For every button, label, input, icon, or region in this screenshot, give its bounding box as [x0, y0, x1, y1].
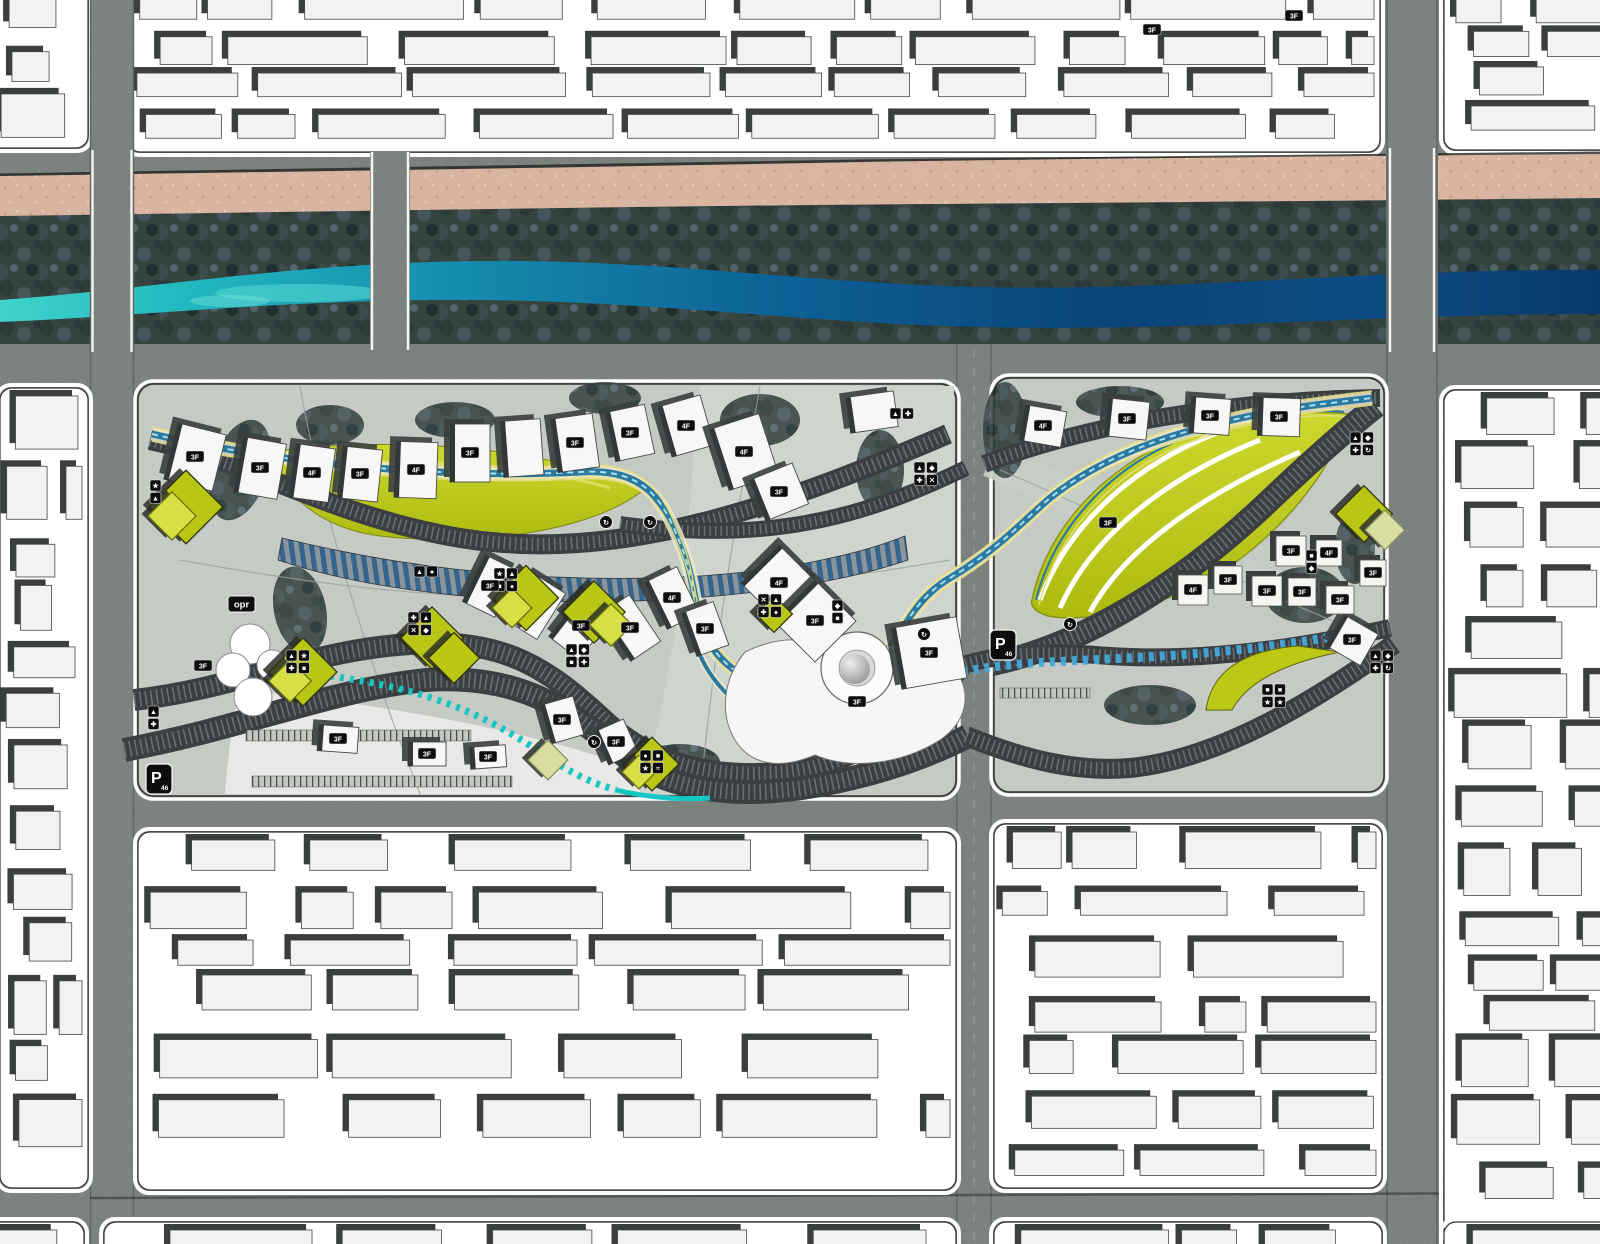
building [1015, 1150, 1124, 1175]
floor-label: 3F [701, 627, 710, 634]
floor-label: 3F [423, 752, 432, 759]
building [413, 73, 566, 97]
floor-label: 3F [256, 466, 265, 473]
parking-row [1000, 688, 1090, 698]
svg-text:◆: ◆ [580, 647, 587, 654]
svg-text:●: ● [510, 584, 514, 591]
svg-text:●: ● [774, 610, 778, 617]
building [633, 975, 745, 1010]
svg-text:●: ● [643, 753, 647, 760]
building [1069, 37, 1125, 65]
city-blocks-top [0, 0, 1600, 155]
building [1182, 1230, 1237, 1244]
building [785, 940, 950, 965]
building [1471, 622, 1562, 658]
floor-label: 3F [1104, 521, 1113, 528]
building [332, 1040, 511, 1078]
activity-badge-cluster: ↻ [1064, 618, 1077, 631]
building [628, 114, 739, 138]
building [1461, 1039, 1528, 1086]
building [837, 37, 902, 65]
svg-text:●: ● [430, 569, 434, 576]
svg-text:◆: ◆ [928, 465, 935, 472]
svg-text:■: ■ [569, 660, 573, 667]
parking-badge: P46 [990, 630, 1016, 660]
building [595, 940, 763, 965]
svg-text:▲: ▲ [416, 569, 423, 576]
svg-text:★: ★ [301, 652, 308, 660]
building [1456, 0, 1501, 23]
building [1474, 31, 1529, 56]
svg-text:↻: ↻ [591, 740, 597, 747]
svg-text:✚: ✚ [905, 410, 911, 418]
building [14, 981, 46, 1035]
floor-label: 3F [1348, 638, 1357, 645]
building [1461, 791, 1542, 826]
svg-text:46: 46 [1005, 651, 1013, 658]
dome [840, 654, 870, 684]
building [592, 73, 710, 97]
svg-text:▲: ▲ [423, 615, 430, 622]
building [911, 892, 950, 929]
building [1072, 832, 1136, 869]
building [258, 73, 402, 97]
floor-label: 3F [1336, 598, 1345, 605]
building [290, 940, 409, 965]
building [342, 1230, 441, 1244]
svg-text:↻: ↻ [1385, 666, 1391, 673]
building [160, 37, 212, 65]
svg-text:▲: ▲ [288, 653, 295, 660]
building [726, 73, 822, 97]
building [1031, 1096, 1156, 1128]
svg-text:✕: ✕ [411, 628, 417, 635]
floor-label: 3F [484, 755, 493, 762]
building [938, 73, 1025, 97]
svg-text:★: ★ [152, 482, 159, 490]
svg-text:▲: ▲ [568, 647, 575, 654]
floor-label: 4F [1325, 551, 1334, 558]
building [59, 981, 82, 1035]
floor-label: 3F [1148, 28, 1157, 35]
building [1457, 1100, 1540, 1144]
building [16, 1046, 48, 1081]
building [740, 0, 855, 19]
svg-text:✚: ✚ [1373, 665, 1379, 673]
svg-text:opr: opr [234, 600, 250, 611]
building [7, 466, 47, 519]
svg-text:↻: ↻ [921, 632, 927, 639]
floor-label: 3F [1290, 14, 1299, 21]
building [1279, 37, 1328, 65]
building [618, 1230, 747, 1244]
floor-label: 4F [668, 596, 677, 603]
building [146, 114, 222, 138]
svg-text:★: ★ [496, 570, 503, 578]
building [0, 1230, 57, 1244]
building [192, 840, 275, 870]
activity-badge-cluster: ↻ [600, 516, 613, 529]
building [1278, 1096, 1373, 1128]
building [597, 0, 705, 19]
building [1313, 0, 1374, 19]
svg-text:■: ■ [302, 666, 306, 673]
building [1470, 508, 1523, 547]
building [1472, 1230, 1600, 1244]
building [813, 1230, 926, 1244]
building [1589, 674, 1600, 717]
building [1017, 114, 1096, 138]
floor-label: 3F [853, 700, 862, 707]
svg-text:▲: ▲ [916, 465, 923, 472]
building [479, 892, 603, 929]
building [926, 1100, 950, 1138]
building [14, 745, 67, 789]
floor-label: 4F [740, 450, 749, 457]
svg-text:◆: ◆ [1364, 435, 1371, 442]
building [1352, 37, 1374, 65]
floor-label: 3F [811, 619, 820, 626]
building [763, 975, 908, 1010]
building [1480, 67, 1544, 95]
building [748, 1040, 878, 1078]
building [170, 1230, 312, 1244]
building [159, 1100, 284, 1138]
activity-badge-cluster: ↻ [918, 628, 931, 641]
building [564, 1040, 681, 1078]
river-sandbar [190, 295, 270, 307]
svg-text:✚: ✚ [917, 477, 923, 485]
building [207, 0, 271, 19]
building [454, 940, 577, 965]
building [480, 114, 613, 138]
floor-label: 3F [1298, 590, 1307, 597]
building [834, 73, 909, 97]
building [1584, 1167, 1600, 1198]
svg-text:▲: ▲ [152, 496, 159, 503]
masterplan-map: ▲✚▲◆✚✕▲◆✚↻↻↻▲●✚▲✕◆★▲■●▲◆■✚✕▲✚●◆■▲★✚■●■★≈… [0, 0, 1600, 1244]
building [1572, 1100, 1600, 1144]
floor-label: 4F [682, 424, 691, 431]
building [1454, 674, 1567, 717]
building [1547, 570, 1597, 607]
building [310, 840, 388, 870]
floor-label: 3F [577, 624, 586, 631]
floor-label: 3F [626, 626, 635, 633]
building [16, 811, 60, 849]
building [332, 975, 417, 1010]
building [871, 0, 941, 19]
building [737, 37, 811, 65]
svg-text:▲: ▲ [150, 709, 157, 716]
building [6, 693, 59, 727]
building [1140, 1150, 1264, 1175]
activity-badge-cluster: ↻ [588, 736, 601, 749]
building [1035, 1002, 1161, 1032]
building [301, 892, 353, 929]
building [1546, 508, 1600, 547]
building [1556, 960, 1600, 990]
building [1485, 1167, 1553, 1198]
building [591, 37, 726, 65]
building [228, 37, 367, 65]
floor-label: 3F [199, 664, 208, 671]
svg-text:◆: ◆ [834, 603, 841, 610]
svg-text:46: 46 [161, 785, 169, 792]
floor-label: 3F [571, 441, 580, 448]
building [29, 923, 72, 961]
svg-text:✕: ✕ [929, 478, 935, 485]
floor-label: 3F [1287, 549, 1296, 556]
building [16, 544, 55, 577]
river-bridge [370, 152, 410, 350]
building [810, 840, 928, 870]
building [1486, 570, 1522, 607]
building [1579, 446, 1600, 488]
svg-text:✚: ✚ [151, 721, 157, 729]
building [9, 0, 56, 27]
building [1555, 1039, 1600, 1086]
parking-badge: P46 [146, 764, 172, 794]
svg-text:≈: ≈ [656, 766, 660, 773]
floor-label: 4F [412, 468, 421, 475]
building [671, 892, 850, 929]
building [1205, 1002, 1246, 1032]
building [14, 647, 75, 678]
building [1464, 848, 1510, 895]
building [16, 396, 78, 449]
floor-label: 3F [191, 455, 200, 462]
building [1178, 1096, 1261, 1128]
building [405, 37, 555, 65]
building [1081, 892, 1228, 916]
building [178, 940, 253, 965]
building [1193, 73, 1272, 97]
building [1064, 73, 1169, 97]
building [493, 1230, 592, 1244]
svg-text:✚: ✚ [289, 665, 295, 673]
building [1021, 1230, 1169, 1244]
building [318, 114, 445, 138]
masterplan-stage: Riverfront corridor urban design masterp… [0, 0, 1600, 1244]
building [1276, 114, 1335, 138]
svg-text:■: ■ [1278, 687, 1282, 694]
building [381, 892, 452, 929]
right-road [1386, 0, 1438, 1244]
svg-text:▲: ▲ [509, 571, 516, 578]
svg-text:★: ★ [1277, 699, 1284, 707]
svg-text:↻: ↻ [603, 520, 609, 527]
svg-text:▲: ▲ [892, 411, 899, 418]
building [238, 114, 295, 138]
svg-text:✕: ✕ [761, 597, 767, 604]
svg-text:■: ■ [835, 616, 839, 623]
floor-label: 3F [1123, 417, 1132, 424]
floor-label: 3F [356, 472, 365, 479]
building [1536, 0, 1600, 23]
floor-label: 4F [1189, 588, 1198, 595]
svg-text:■: ■ [1309, 553, 1313, 560]
building [623, 1100, 700, 1138]
building [1586, 398, 1600, 435]
floor-label: 3F [775, 490, 784, 497]
floor-label: 4F [775, 581, 784, 588]
floor-label: 3F [486, 584, 495, 591]
svg-text:↻: ↻ [1067, 622, 1073, 629]
building [150, 892, 246, 929]
floor-label: 3F [1206, 414, 1215, 421]
building [1304, 73, 1374, 97]
building [972, 0, 1120, 19]
building [1487, 398, 1554, 435]
building [455, 975, 579, 1010]
svg-text:◆: ◆ [422, 628, 429, 635]
building [1474, 960, 1543, 990]
floor-label: 4F [308, 471, 317, 478]
building [1274, 892, 1364, 916]
svg-text:↻: ↻ [1365, 448, 1371, 455]
slab-building [839, 386, 898, 434]
floor-label: 3F [925, 651, 934, 658]
building [202, 975, 311, 1010]
building [1305, 1150, 1376, 1175]
building [12, 52, 49, 82]
floor-label: 3F [558, 718, 567, 725]
building [480, 0, 562, 19]
building [722, 1100, 877, 1138]
building [1, 94, 65, 137]
building [305, 0, 464, 19]
building [1131, 0, 1286, 19]
building [1538, 848, 1581, 895]
building [1575, 791, 1600, 826]
building [1035, 941, 1160, 977]
building [1267, 1002, 1376, 1032]
building [752, 114, 879, 138]
building [140, 0, 197, 19]
svg-text:◆: ◆ [1308, 566, 1315, 573]
building [66, 466, 82, 519]
building [1194, 941, 1344, 977]
building [1029, 1040, 1073, 1073]
building [455, 840, 571, 870]
building [1131, 114, 1245, 138]
building [630, 840, 750, 870]
building [1185, 832, 1321, 869]
svg-text:✚: ✚ [761, 609, 767, 617]
floor-label: 3F [1224, 578, 1233, 585]
floor-label: 3F [612, 740, 621, 747]
building [1358, 832, 1376, 869]
svg-text:★: ★ [642, 765, 649, 773]
building [1461, 446, 1534, 488]
building [1582, 917, 1600, 945]
building [1471, 106, 1595, 130]
building [483, 1100, 591, 1138]
building [1118, 1040, 1243, 1073]
svg-text:★: ★ [1264, 699, 1271, 707]
vegetation-band [0, 198, 1600, 350]
floor-label: 3F [1275, 415, 1284, 422]
building [1547, 31, 1600, 56]
building [1465, 917, 1558, 945]
svg-text:◆: ◆ [1384, 653, 1391, 660]
building [1265, 1230, 1336, 1244]
building [1164, 37, 1265, 65]
building [19, 1100, 82, 1147]
svg-text:↻: ↻ [647, 520, 653, 527]
floor-label: 4F [1039, 424, 1048, 431]
building [13, 874, 72, 909]
svg-text:✚: ✚ [411, 614, 417, 622]
building [1261, 1040, 1376, 1073]
building [349, 1100, 441, 1138]
activity-badge-cluster: ↻ [644, 516, 657, 529]
building [915, 37, 1034, 65]
svg-text:✚: ✚ [1353, 447, 1359, 455]
floor-label: 3F [1369, 571, 1378, 578]
terrain [0, 154, 1600, 386]
svg-text:▲: ▲ [1352, 435, 1359, 442]
building [1468, 725, 1531, 768]
building [1013, 832, 1062, 869]
svg-text:▲: ▲ [773, 597, 780, 604]
left-road [90, 0, 134, 1244]
building [894, 114, 995, 138]
slab-building [494, 414, 544, 478]
floor-label: 3F [626, 431, 635, 438]
opr-badge: opr [228, 596, 255, 612]
building [20, 585, 51, 630]
building [1489, 1001, 1594, 1030]
building [160, 1040, 318, 1078]
building [137, 73, 238, 97]
building [1566, 725, 1600, 768]
parking-row [252, 776, 512, 787]
svg-text:✚: ✚ [581, 659, 587, 667]
svg-text:■: ■ [1265, 687, 1269, 694]
svg-text:▲: ▲ [1372, 653, 1379, 660]
floor-label: 3F [1263, 589, 1272, 596]
floor-label: 3F [466, 451, 475, 458]
building [1002, 892, 1047, 916]
svg-text:■: ■ [656, 753, 660, 760]
floor-label: 3F [334, 737, 343, 744]
